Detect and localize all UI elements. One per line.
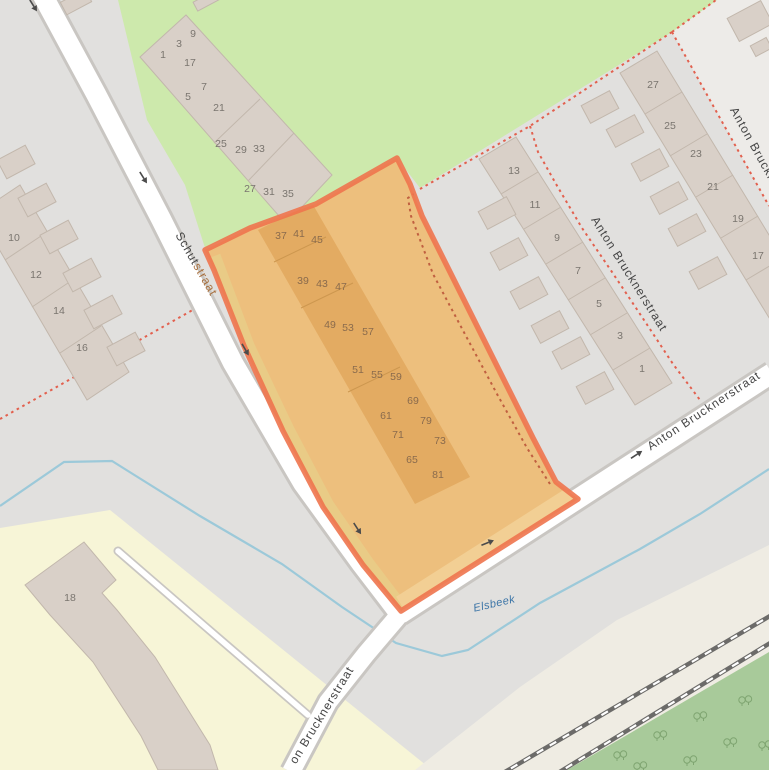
house-number-21: 21 (213, 102, 225, 114)
house-number-33: 33 (253, 143, 265, 155)
house-number-25: 25 (215, 138, 227, 150)
house-number-19: 19 (732, 213, 744, 225)
house-number-65: 65 (406, 454, 418, 466)
house-number-23: 23 (690, 148, 702, 160)
house-number-12: 12 (30, 269, 42, 281)
house-number-59: 59 (390, 371, 402, 383)
house-number-14: 14 (53, 305, 65, 317)
house-number-7: 7 (201, 81, 207, 93)
house-number-27: 27 (244, 183, 256, 195)
house-number-71: 71 (392, 429, 404, 441)
house-number-21: 21 (707, 181, 719, 193)
house-number-61: 61 (380, 410, 392, 422)
house-number-39: 39 (297, 275, 309, 287)
house-number-9: 9 (554, 232, 560, 244)
house-number-27: 27 (647, 79, 659, 91)
house-number-73: 73 (434, 435, 446, 447)
house-number-55: 55 (371, 369, 383, 381)
house-number-9: 9 (190, 28, 196, 40)
house-number-25: 25 (664, 120, 676, 132)
house-number-45: 45 (311, 234, 323, 246)
house-number-47: 47 (335, 281, 347, 293)
house-number-17: 17 (184, 57, 196, 69)
house-number-79: 79 (420, 415, 432, 427)
house-number-35: 35 (282, 188, 294, 200)
house-number-69: 69 (407, 395, 419, 407)
house-number-1: 1 (160, 49, 166, 61)
house-number-37: 37 (275, 230, 287, 242)
house-number-53: 53 (342, 322, 354, 334)
house-number-16: 16 (76, 342, 88, 354)
house-number-31: 31 (263, 186, 275, 198)
house-number-51: 51 (352, 364, 364, 376)
house-number-11: 11 (530, 199, 541, 211)
house-number-5: 5 (596, 298, 602, 310)
house-number-81: 81 (432, 469, 444, 481)
house-number-41: 41 (293, 228, 305, 240)
house-number-5: 5 (185, 91, 191, 103)
house-number-17: 17 (752, 250, 764, 262)
house-number-7: 7 (575, 265, 581, 277)
house-number-49: 49 (324, 319, 336, 331)
house-number-57: 57 (362, 326, 374, 338)
house-number-13: 13 (508, 165, 520, 177)
house-number-18: 18 (64, 592, 76, 604)
house-number-10: 10 (8, 232, 20, 244)
house-number-43: 43 (316, 278, 328, 290)
house-number-29: 29 (235, 144, 247, 156)
house-number-3: 3 (617, 330, 623, 342)
house-number-1: 1 (639, 363, 645, 375)
house-number-3: 3 (176, 38, 182, 50)
map-canvas[interactable]: 1012141613917572125293327313513119753127… (0, 0, 769, 770)
